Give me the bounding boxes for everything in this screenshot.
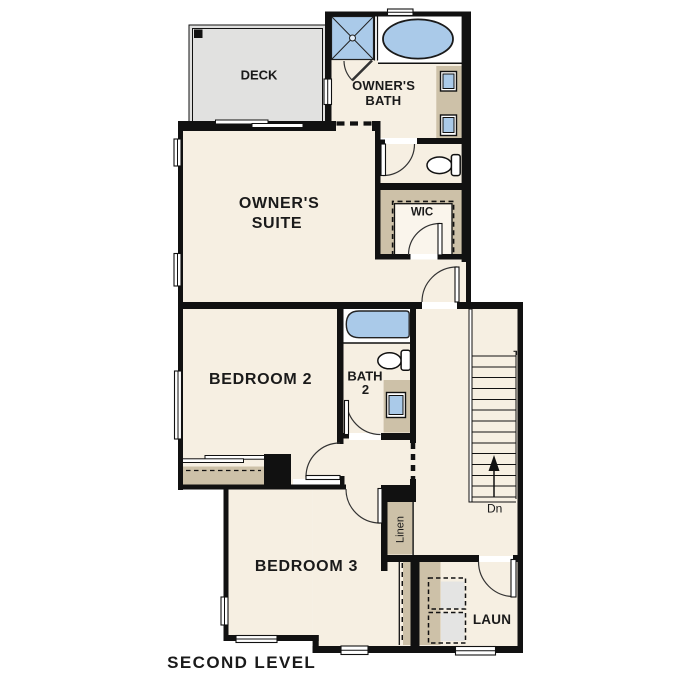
svg-text:BATH: BATH (365, 93, 401, 108)
svg-text:BEDROOM 3: BEDROOM 3 (255, 558, 358, 575)
svg-text:2: 2 (362, 382, 369, 397)
svg-text:LAUN: LAUN (473, 612, 511, 627)
svg-text:OWNER'S: OWNER'S (239, 195, 320, 212)
svg-text:Linen: Linen (395, 516, 407, 543)
svg-text:SECOND LEVEL: SECOND LEVEL (167, 653, 316, 672)
svg-text:OWNER'S: OWNER'S (352, 78, 415, 93)
svg-text:WIC: WIC (411, 207, 433, 219)
svg-text:Dn: Dn (487, 501, 502, 515)
svg-text:BEDROOM 2: BEDROOM 2 (209, 371, 312, 388)
svg-text:SUITE: SUITE (252, 215, 303, 232)
svg-text:DECK: DECK (241, 68, 278, 83)
